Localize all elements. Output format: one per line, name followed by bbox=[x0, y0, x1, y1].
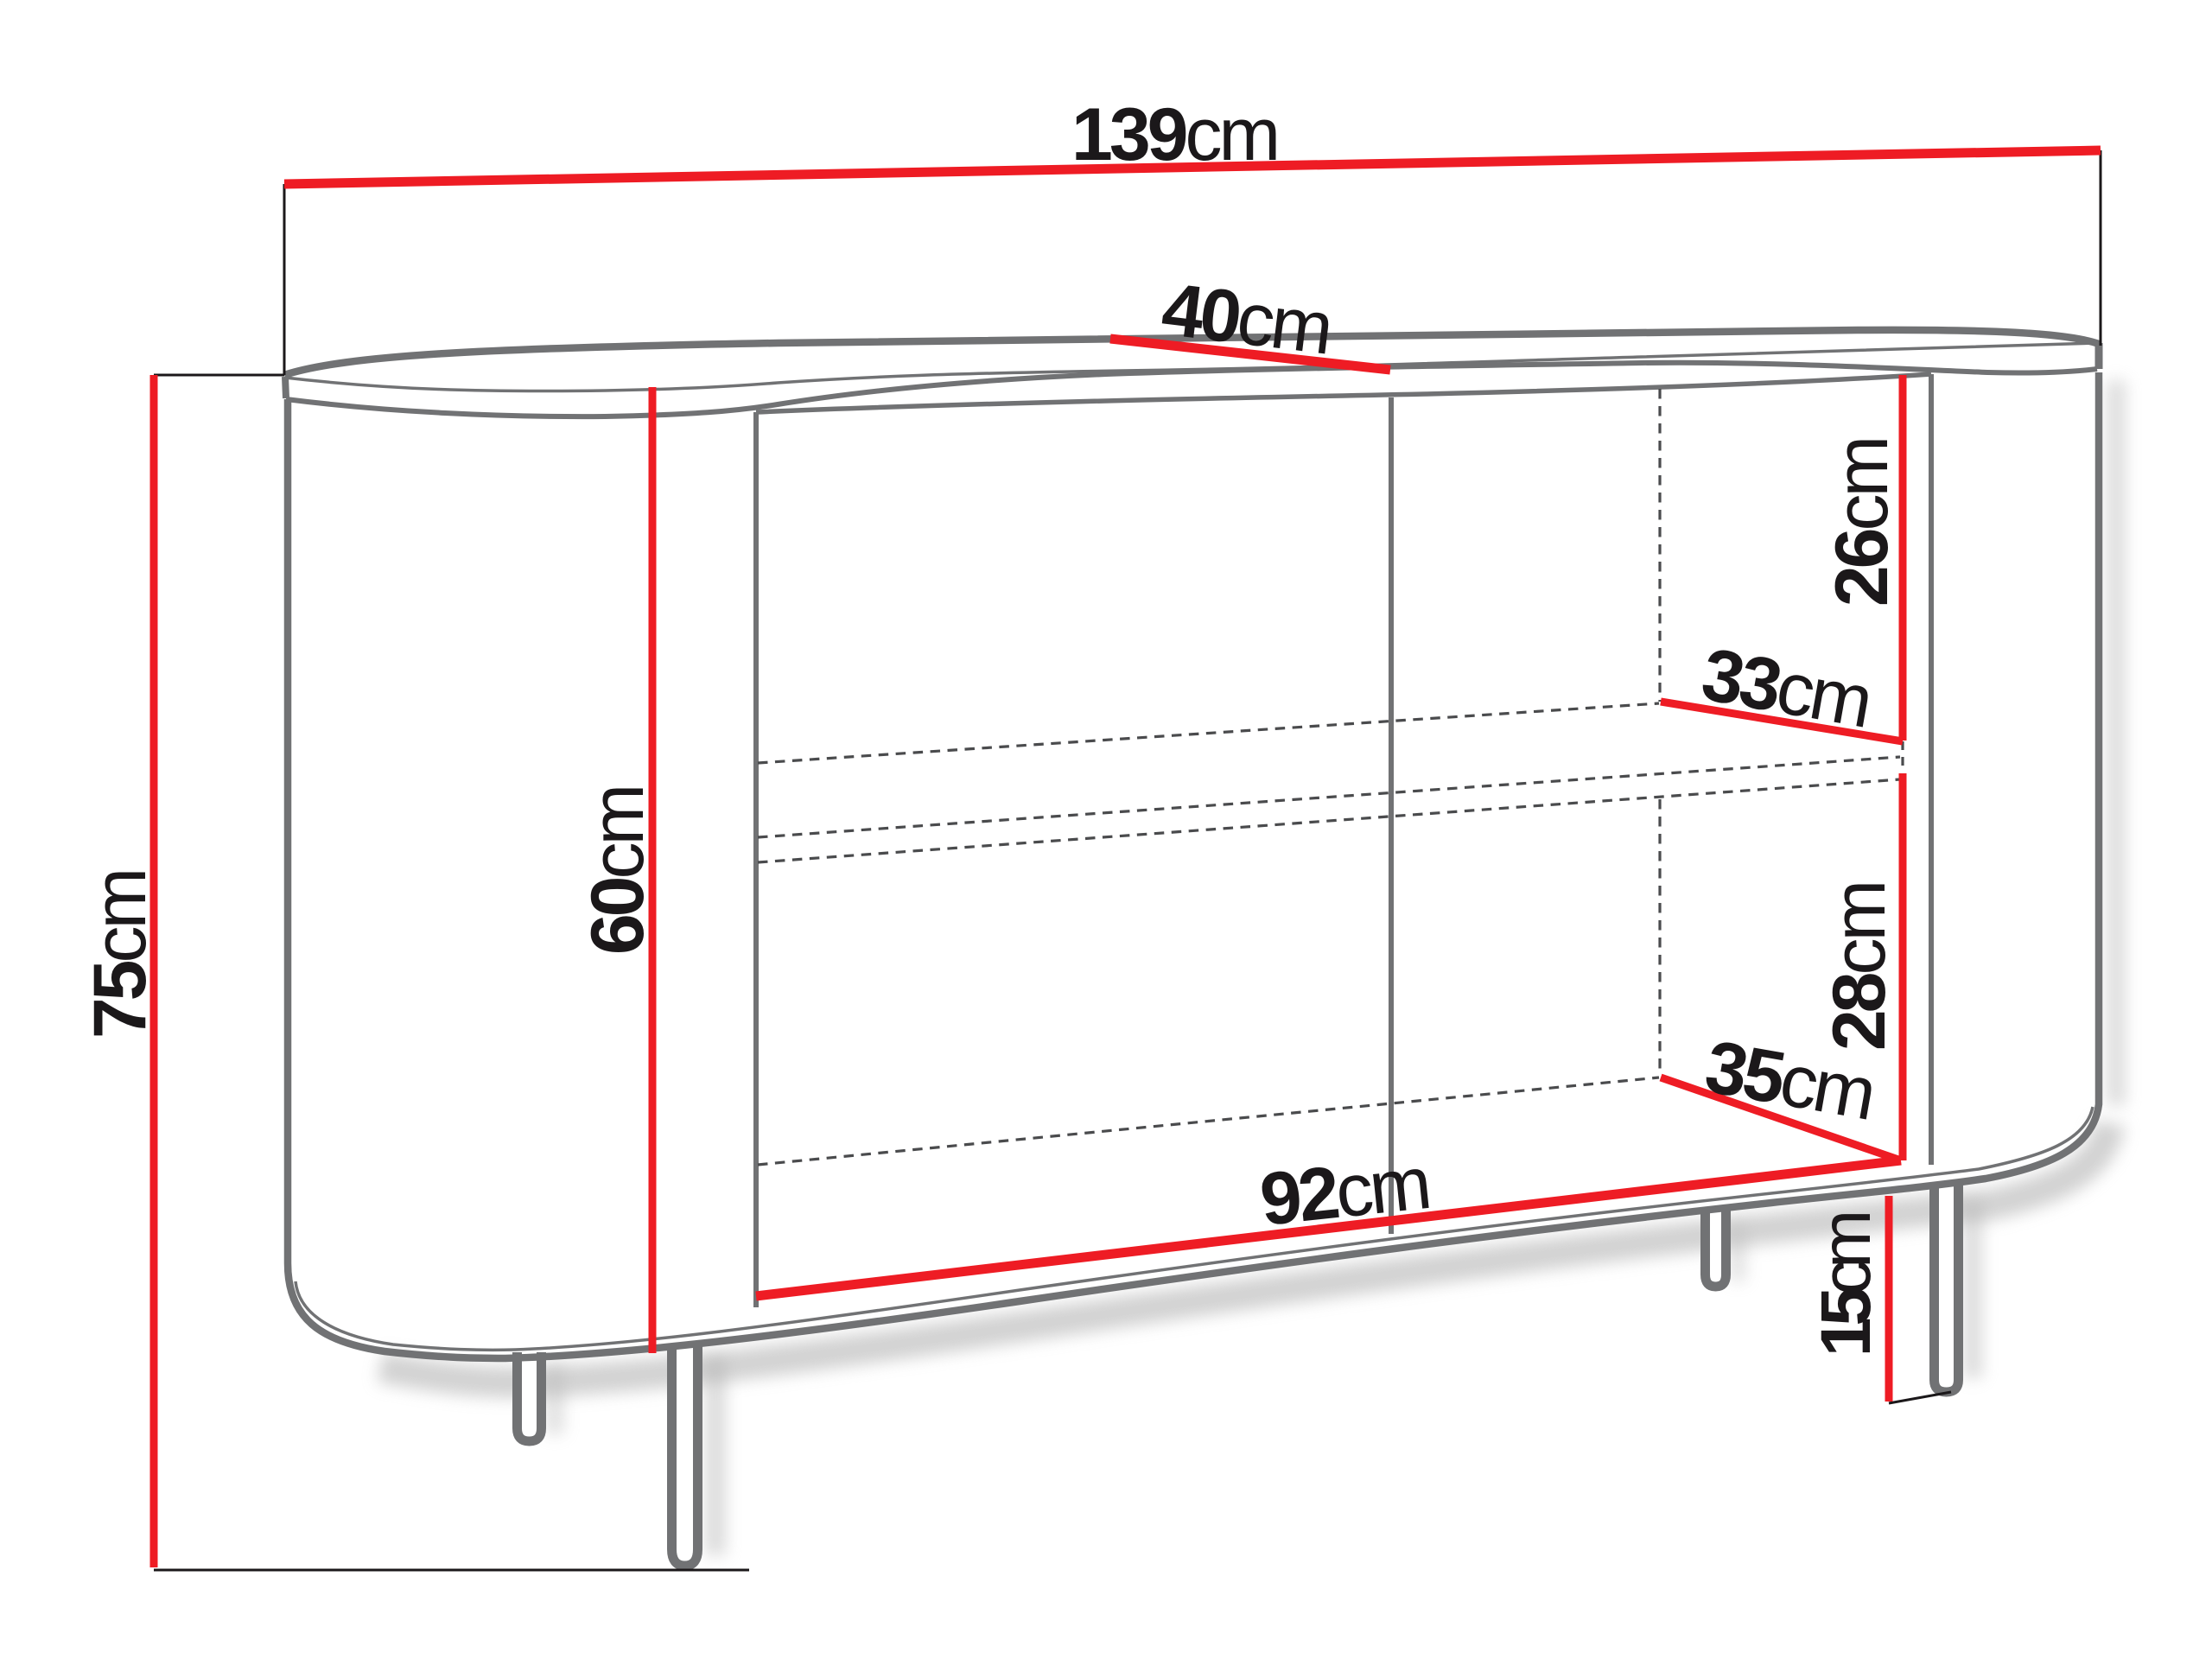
svg-text:26cm: 26cm bbox=[1821, 439, 1904, 607]
svg-text:139cm: 139cm bbox=[1071, 93, 1277, 176]
svg-text:40cm: 40cm bbox=[1158, 268, 1335, 371]
svg-text:60cm: 60cm bbox=[576, 787, 659, 955]
svg-text:92cm: 92cm bbox=[1256, 1141, 1432, 1242]
svg-text:75cm: 75cm bbox=[79, 871, 162, 1039]
svg-text:15cm: 15cm bbox=[1807, 1214, 1885, 1357]
svg-text:28cm: 28cm bbox=[1818, 883, 1901, 1051]
svg-text:33cm: 33cm bbox=[1696, 632, 1876, 743]
